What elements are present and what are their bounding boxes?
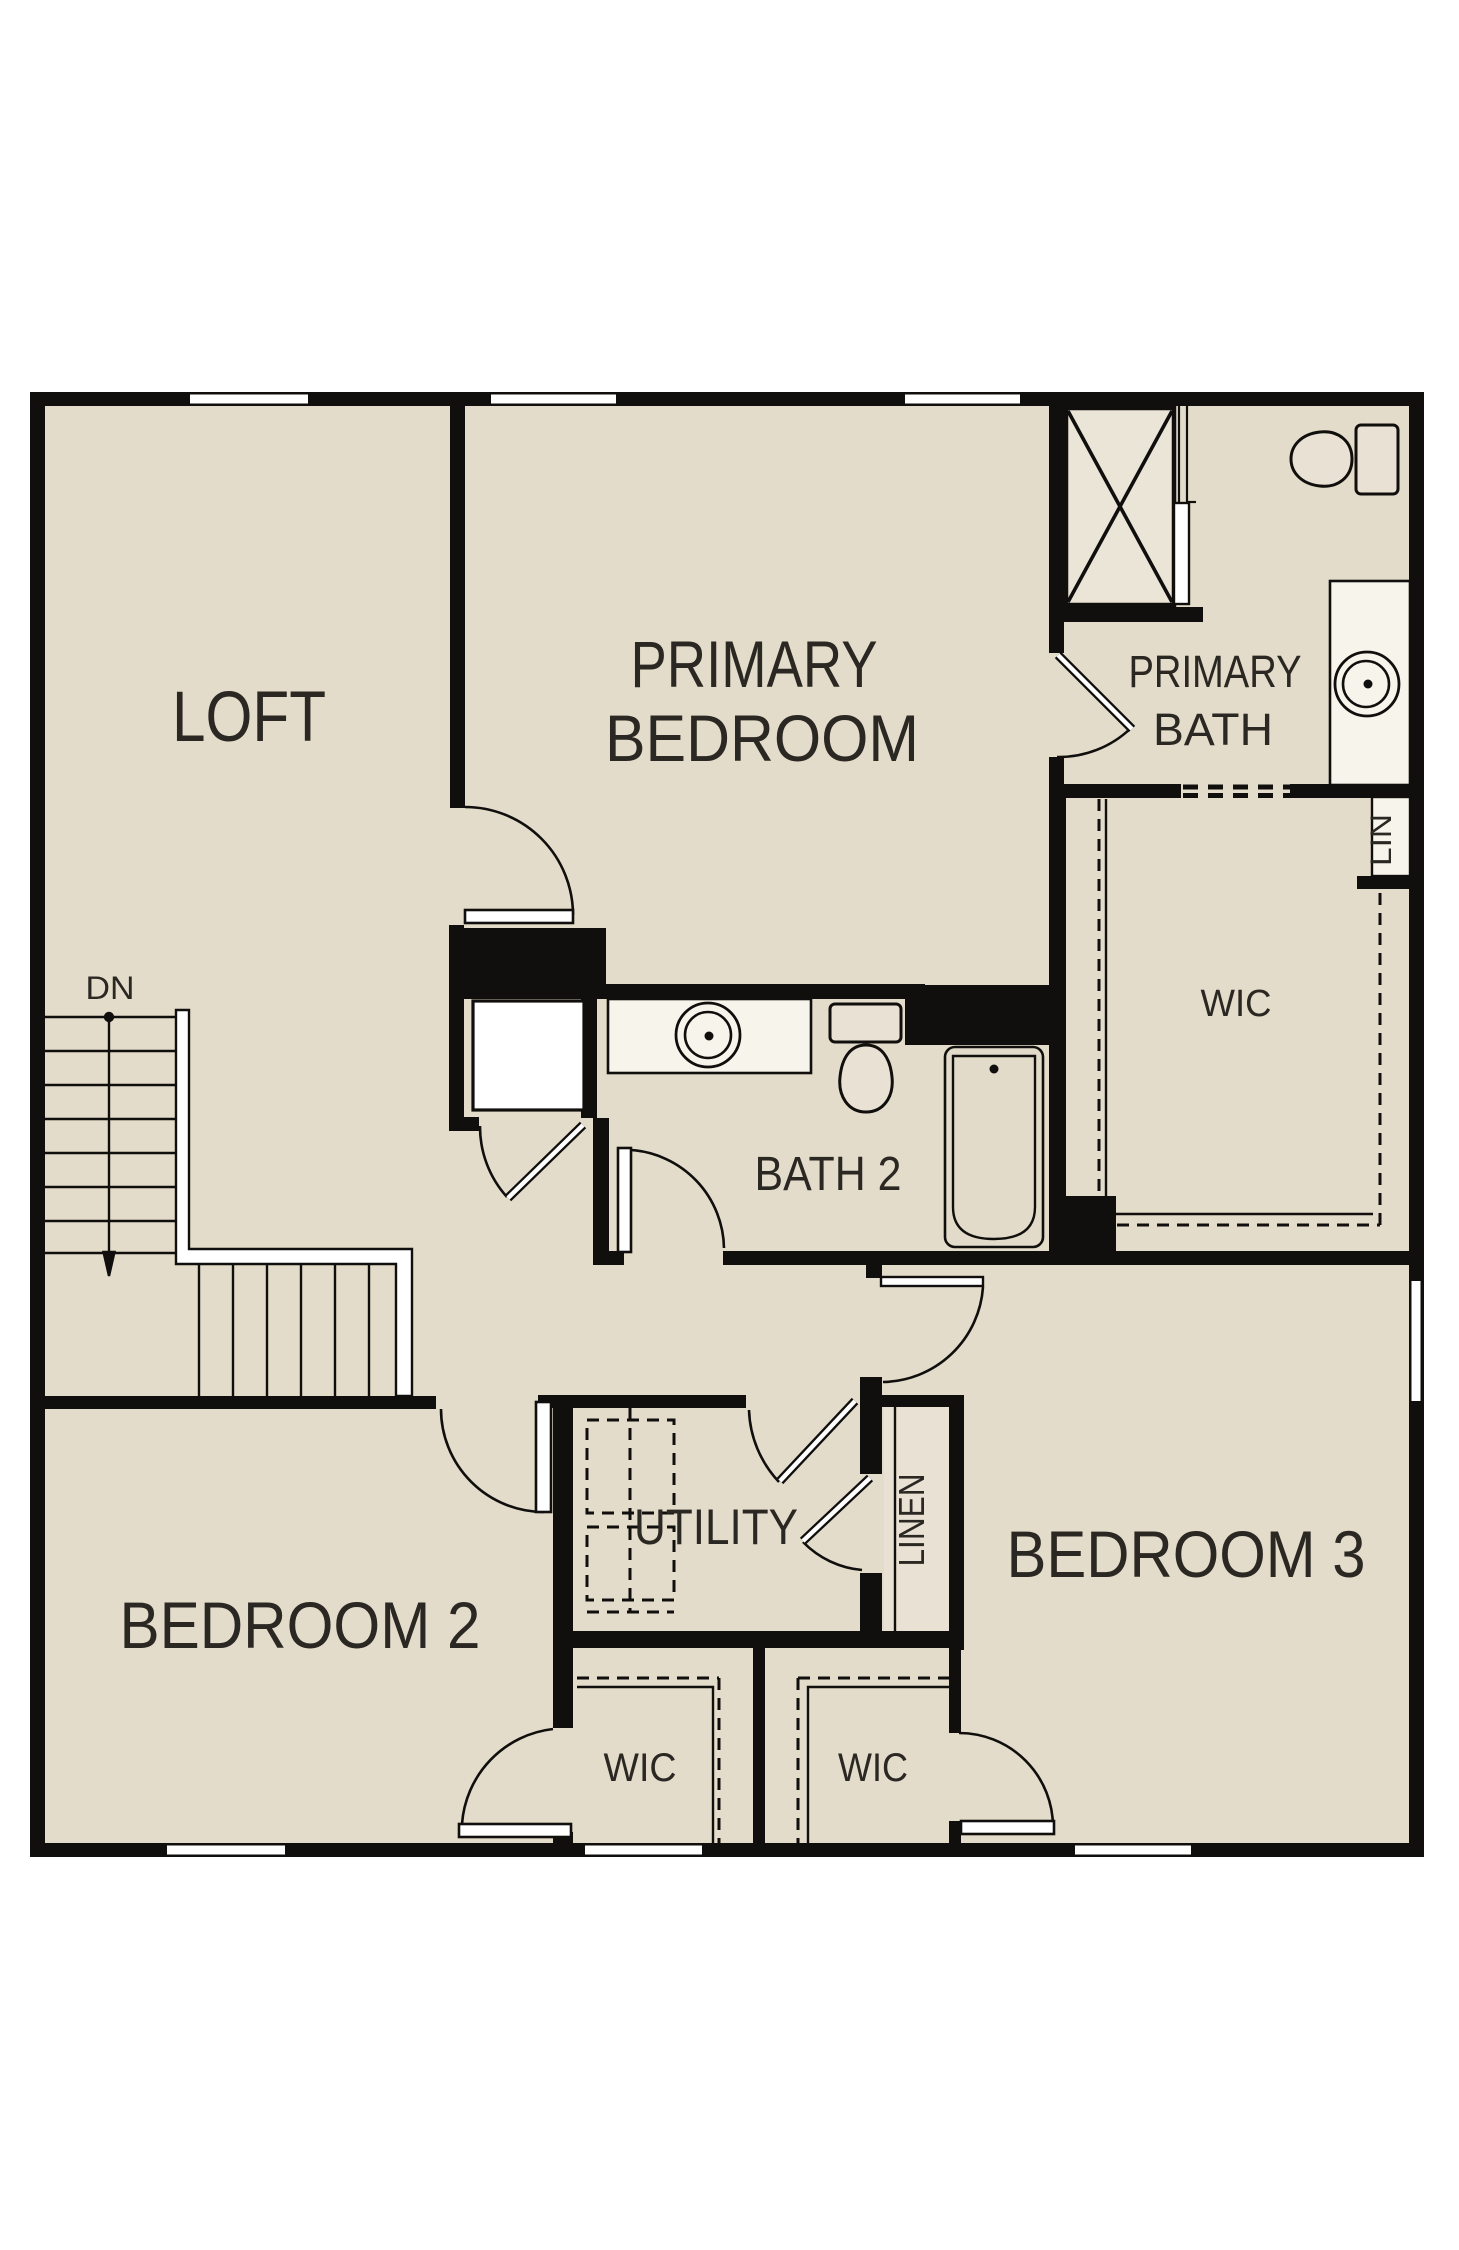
svg-text:BEDROOM 3: BEDROOM 3 — [1007, 1517, 1366, 1591]
svg-text:WIC: WIC — [1201, 983, 1272, 1025]
svg-text:LINEN: LINEN — [891, 1474, 932, 1567]
svg-text:PRIMARY: PRIMARY — [1129, 646, 1302, 697]
svg-text:WIC: WIC — [604, 1746, 677, 1790]
svg-text:LIN: LIN — [1365, 814, 1398, 866]
svg-text:PRIMARY: PRIMARY — [631, 627, 878, 701]
svg-text:BATH: BATH — [1153, 704, 1273, 755]
svg-text:DN: DN — [86, 970, 135, 1006]
svg-text:BEDROOM 2: BEDROOM 2 — [120, 1588, 481, 1662]
svg-text:BEDROOM: BEDROOM — [605, 701, 919, 775]
svg-text:LOFT: LOFT — [172, 678, 326, 757]
svg-text:WIC: WIC — [838, 1746, 908, 1790]
svg-text:UTILITY: UTILITY — [634, 1499, 798, 1555]
svg-text:BATH 2: BATH 2 — [755, 1148, 902, 1201]
